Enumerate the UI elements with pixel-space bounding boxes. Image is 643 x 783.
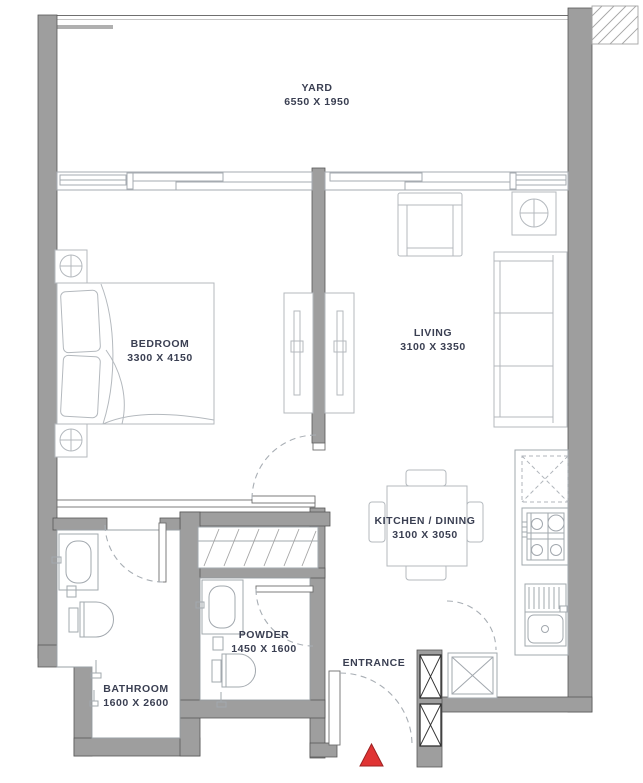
bedroom-door-leaf	[252, 496, 315, 503]
closet-box	[198, 527, 318, 568]
bedroom-dims: 3300 X 4150	[127, 352, 193, 364]
entrance-label: ENTRANCE	[343, 657, 406, 669]
appliance-x-box	[448, 653, 497, 698]
bathroom-door-leaf	[159, 523, 166, 582]
hatch-border	[592, 6, 638, 44]
entrance-door-leaf	[329, 671, 340, 745]
door-stop-tab	[313, 443, 325, 450]
living-dims: 3100 X 3350	[400, 341, 466, 353]
fridge-icon	[522, 456, 568, 502]
wall-bedroom-living-divider	[312, 168, 325, 443]
cooktop-icon	[522, 508, 568, 565]
wall-left-outer	[38, 15, 57, 658]
yard-fence-post	[57, 25, 113, 29]
bedroom-label: BEDROOM	[131, 338, 190, 350]
living-label: LIVING	[414, 327, 452, 339]
tap-icon	[560, 606, 567, 612]
sofa	[494, 252, 567, 427]
wall-bathroom-top-left	[53, 518, 107, 530]
living-room: LIVING 3100 X 3350	[398, 192, 567, 427]
kitchen-dims: 3100 X 3050	[392, 529, 458, 541]
dining-chair	[406, 470, 446, 486]
powder-dims: 1450 X 1600	[231, 643, 297, 655]
yard-dims: 6550 X 1950	[284, 96, 350, 108]
entrance-marker-icon	[360, 744, 383, 766]
sliding-panel	[330, 173, 422, 181]
yard-label: YARD	[302, 82, 333, 94]
powder-vanity	[196, 580, 243, 634]
window-jamb	[127, 173, 133, 189]
sliding-panel	[405, 182, 513, 190]
duct-shaft	[420, 655, 441, 698]
sliding-panel	[176, 182, 312, 190]
wall-right-outer	[568, 8, 592, 712]
wall-closet-top	[180, 512, 330, 526]
floor-plan-drawing: BEDROOM 3300 X 4150 LIVING 3100 X 3350	[0, 0, 643, 783]
bedroom-door-swing	[252, 435, 316, 499]
entrance-door-swing	[340, 673, 412, 745]
bathroom: BATHROOM 1600 X 2600	[52, 523, 180, 738]
sliding-panel	[133, 173, 223, 181]
powder-room: POWDER 1450 X 1600	[196, 578, 313, 707]
bathroom-vanity	[52, 534, 98, 590]
yard-boundary	[39, 16, 591, 30]
yard: YARD 6550 X 1950	[284, 82, 350, 108]
bathroom-label: BATHROOM	[103, 683, 168, 695]
powder-door-leaf	[256, 586, 313, 592]
wall-bathroom-powder-divider	[180, 512, 200, 756]
window-jamb	[510, 173, 516, 189]
kitchen-label: KITCHEN / DINING	[375, 515, 476, 527]
kitchen-sink-icon	[525, 584, 567, 646]
wall-powder-bottom	[180, 700, 325, 718]
hall-closet	[198, 527, 318, 568]
powder-label: POWDER	[239, 629, 290, 641]
neighbour-hatch-block	[592, 6, 638, 44]
bedroom: BEDROOM 3300 X 4150	[55, 250, 354, 503]
floor-plan: BEDROOM 3300 X 4150 LIVING 3100 X 3350	[0, 0, 643, 783]
wall-closet-bottom	[186, 568, 325, 578]
window-band	[57, 172, 568, 190]
armchair	[398, 193, 462, 256]
duct-shaft	[420, 704, 441, 746]
kitchen-door-swing	[447, 601, 496, 650]
wall-kitchen-bottom	[440, 697, 592, 712]
bathroom-dims: 1600 X 2600	[103, 697, 169, 709]
